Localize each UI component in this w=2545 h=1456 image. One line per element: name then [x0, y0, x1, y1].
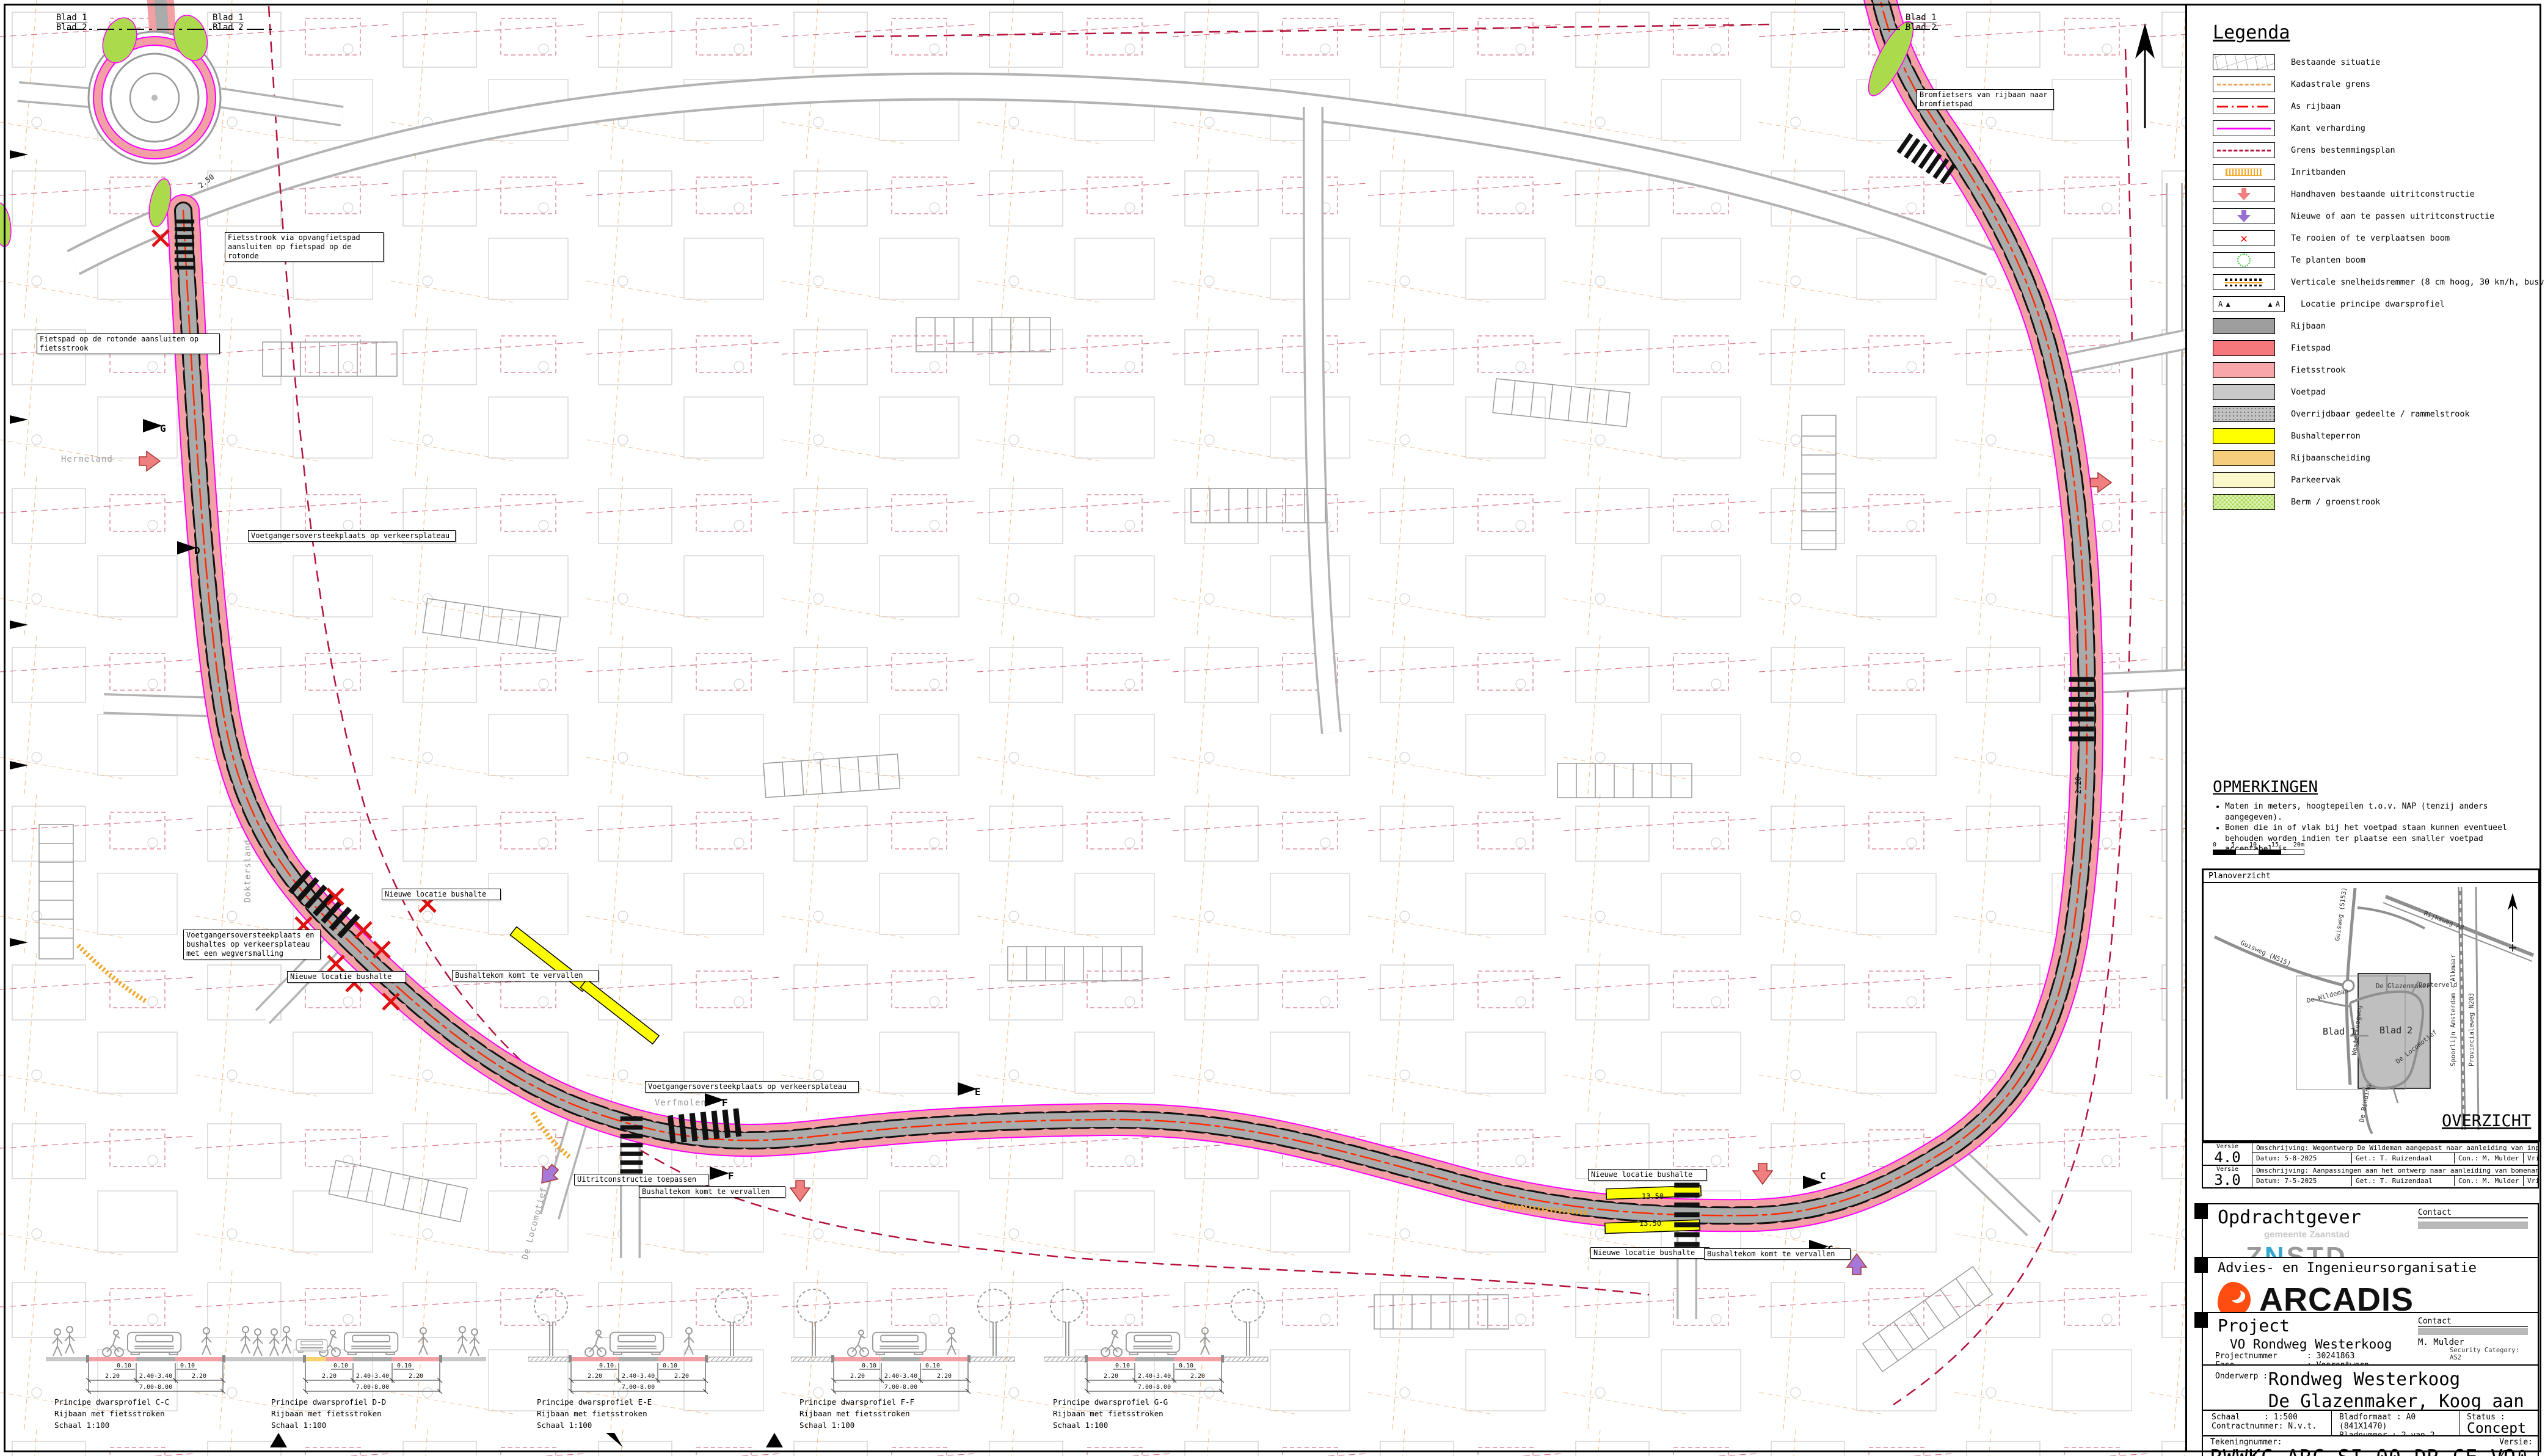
- security-category-label: Security Category:: [2450, 1347, 2529, 1355]
- map-dimension: 13.50: [1639, 1219, 1661, 1228]
- legend-item-label: Bushalteperron: [2291, 431, 2361, 441]
- map-annotation: Fietspad op de rotonde aansluiten op fie…: [37, 333, 220, 354]
- legend-item-label: Fietspad: [2291, 343, 2331, 353]
- legend-swatch: [2213, 274, 2275, 290]
- map-annotation: Voetgangersoversteekplaats en bushaltes …: [183, 930, 321, 959]
- scale-bar-ticks: 05101520m: [2213, 842, 2304, 848]
- section-marker-letter: E: [975, 1086, 981, 1097]
- legend-item: Rijbaan: [2213, 318, 2545, 334]
- map-annotation-text: Nieuwe locatie bushalte: [1591, 1170, 1692, 1179]
- svg-text:Guisweg (N515): Guisweg (N515): [2240, 939, 2292, 968]
- legend-item-label: Rijbaan: [2291, 321, 2326, 331]
- legend-item: Kant verharding: [2213, 120, 2545, 136]
- revision-table: Versie 4.0 Omschrijving: Wegontwerp De W…: [2202, 1142, 2539, 1188]
- security-category-value: AS2: [2450, 1354, 2529, 1362]
- map-annotation-text: Bromfietsers van rijbaan naar bromfietsp…: [1920, 90, 2048, 108]
- legend-swatch: [2213, 450, 2275, 466]
- map-annotation: Nieuwe locatie bushalte: [1588, 1169, 1707, 1181]
- blad-marker: Blad 1 Blad 2: [213, 13, 244, 33]
- legend-item: Bushalteperron: [2213, 428, 2545, 444]
- legend-item-label: Kant verharding: [2291, 123, 2365, 133]
- revision-row: Versie 4.0 Omschrijving: Wegontwerp De W…: [2203, 1143, 2538, 1166]
- overview-blad1: Blad 1: [2323, 1026, 2356, 1037]
- map-dimension: 2.50: [197, 172, 216, 190]
- bladformaat: Bladformaat : A0 (841X1470): [2339, 1413, 2459, 1431]
- legend-swatch: [2213, 98, 2275, 114]
- version-number: 3.0: [2203, 1173, 2252, 1187]
- scale-tick: 15: [2271, 842, 2279, 848]
- legend-item: Te rooien of te verplaatsen boom: [2213, 230, 2545, 246]
- legend-item-label: Inritbanden: [2291, 167, 2345, 177]
- revision-checked-by: Con.: M. Mulder: [2455, 1153, 2524, 1163]
- drawing-number-row: Tekeningnummer: RWWKG-ARC-SI-00-DR-CE-VO…: [2202, 1435, 2539, 1456]
- legend-swatch: [2213, 252, 2275, 268]
- status-value: Concept: [2467, 1422, 2538, 1436]
- project-section: Project Contact M. Mulder VO Rondweg Wes…: [2202, 1312, 2539, 1366]
- scale-tick: 0: [2213, 842, 2216, 848]
- projectnumber-label: Projectnummer: [2215, 1352, 2307, 1361]
- legend-swatch: [2213, 208, 2275, 224]
- map-annotation: Bushaltekom komt te vervallen: [639, 1186, 785, 1198]
- svg-text:Oosterveld: Oosterveld: [2419, 981, 2457, 989]
- section-marker-letter: F: [728, 1170, 734, 1182]
- legend-title: Legenda: [2213, 22, 2545, 43]
- gemeente-zaanstad-wordmark: gemeente Zaanstad: [2264, 1229, 2538, 1240]
- blad-2-label: Blad 2: [213, 23, 244, 32]
- revision-drawn-by: Get.: T. Ruizendaal: [2352, 1153, 2455, 1163]
- version-number: 4.0: [2203, 1150, 2252, 1165]
- scale-bar-graphic: [2213, 850, 2304, 855]
- engineer-label: Advies- en Ingenieursorganisatie: [2218, 1261, 2538, 1276]
- scale-tick: 5: [2231, 842, 2235, 848]
- overview-blad2: Blad 2: [2379, 1025, 2412, 1036]
- blad-marker: Blad 1 Blad 2: [1906, 13, 1937, 33]
- map-annotation-text: Voetgangersoversteekplaats op verkeerspl…: [648, 1082, 847, 1091]
- legend-item: Bestaande situatie: [2213, 54, 2545, 70]
- legend: Legenda Bestaande situatie Kadastrale gr…: [2213, 22, 2545, 516]
- opmerkingen-title: OPMERKINGEN: [2213, 778, 2530, 796]
- legend-item: Kadastrale grens: [2213, 76, 2545, 92]
- overview-north-arrow: [2508, 893, 2518, 952]
- legend-item: Locatie principe dwarsprofiel: [2213, 296, 2545, 312]
- legend-item-label: Fietsstrook: [2291, 365, 2345, 375]
- section-corner-mark: [2194, 1312, 2208, 1328]
- map-annotation: Nieuwe locatie bushalte: [382, 889, 501, 900]
- project-contact-redacted: [2418, 1328, 2528, 1335]
- street-name: Hermeland: [61, 454, 113, 464]
- scale-tick: 20m: [2293, 842, 2304, 848]
- scale-row: Schaal : 1:500 Contractnummer: N.v.t. Bl…: [2202, 1410, 2539, 1436]
- blad-2-label: Blad 2: [1906, 23, 1937, 32]
- revision-date: Datum: 7-5-2025: [2252, 1176, 2352, 1186]
- blad-1-label: Blad 1: [56, 13, 87, 23]
- legend-item-label: Overrijdbaar gedeelte / rammelstrook: [2291, 409, 2470, 419]
- svg-text:Guisweg (S153): Guisweg (S153): [2334, 887, 2348, 941]
- map-annotation-text: Bushaltekom komt te vervallen: [455, 971, 583, 980]
- legend-item: Berm / groenstrook: [2213, 494, 2545, 510]
- project-contact-label: Contact: [2418, 1317, 2528, 1327]
- revision-row: Versie 3.0 Omschrijving: Aanpassingen aa…: [2203, 1166, 2538, 1187]
- map-annotation: Fietsstrook via opvangfietspad aansluite…: [225, 232, 384, 262]
- map-annotation-text: Voetgangersoversteekplaats en bushaltes …: [186, 931, 315, 958]
- legend-swatch: [2213, 76, 2275, 92]
- legend-item: Nieuwe of aan te passen uitritconstructi…: [2213, 208, 2545, 224]
- client-contact-redacted: [2418, 1221, 2528, 1229]
- legend-item: Handhaven bestaande uitritconstructie: [2213, 186, 2545, 202]
- legend-swatch: [2213, 296, 2285, 312]
- legend-swatch: [2213, 164, 2275, 180]
- svg-text:Spoorlijn Amsterdam - Alkmaar: Spoorlijn Amsterdam - Alkmaar: [2450, 955, 2457, 1066]
- version-box: Versie: 4.0: [2499, 1438, 2533, 1456]
- street-name: Doktersland: [243, 839, 253, 903]
- section-marker-letter: G: [160, 423, 166, 434]
- map-annotation-text: Nieuwe locatie bushalte: [385, 890, 486, 898]
- legend-item: As rijbaan: [2213, 98, 2545, 114]
- blad-2-label: Blad 2: [56, 23, 87, 32]
- map-annotation-text: Nieuwe locatie bushalte: [1593, 1248, 1695, 1257]
- revision-version-cell: Versie 3.0: [2203, 1166, 2252, 1187]
- map-annotation: Uitritconstructie toepassen: [574, 1174, 708, 1185]
- revision-date: Datum: 5-8-2025: [2252, 1153, 2352, 1163]
- map-annotation-text: Uitritconstructie toepassen: [577, 1175, 696, 1184]
- blad-1-label: Blad 1: [1906, 13, 1937, 23]
- section-corner-mark: [2194, 1203, 2208, 1219]
- revision-checked-by: Con.: M. Mulder: [2455, 1176, 2524, 1186]
- contractnummer-value: : N.v.t.: [2279, 1422, 2317, 1431]
- legend-swatch: [2213, 406, 2275, 422]
- security-category: Security Category: AS2: [2450, 1347, 2529, 1362]
- legend-swatch: [2213, 384, 2275, 400]
- map-annotation-text: Bushaltekom komt te vervallen: [1707, 1250, 1835, 1258]
- legend-swatch: [2213, 230, 2275, 246]
- subject-line1: Rondweg Westerkoog: [2268, 1368, 2538, 1390]
- map-annotation: Nieuwe locatie bushalte: [1590, 1247, 1709, 1259]
- map-area: Fietspad op de rotonde aansluiten op fie…: [0, 0, 2185, 1456]
- version-box-value: 4.0: [2499, 1447, 2533, 1456]
- street-name: De Locomotief: [520, 1186, 549, 1261]
- map-annotation-text: Fietsstrook via opvangfietspad aansluite…: [228, 233, 360, 260]
- overview-panel: Planoverzicht: [2202, 868, 2540, 1142]
- client-contact-label: Contact: [2418, 1208, 2528, 1218]
- legend-item-label: Te rooien of te verplaatsen boom: [2291, 233, 2450, 243]
- legend-item-label: Locatie principe dwarsprofiel: [2301, 299, 2445, 309]
- title-column: Legenda Bestaande situatie Kadastrale gr…: [2185, 4, 2543, 1452]
- map-annotation-text: Fietspad op de rotonde aansluiten op fie…: [40, 335, 198, 352]
- legend-item-label: Parkeervak: [2291, 475, 2340, 485]
- legend-item: Inritbanden: [2213, 164, 2545, 180]
- drawing-number: RWWKG-ARC-SI-00-DR-CE-VO-0002: [2210, 1447, 2538, 1456]
- schaal-value: : 1:500: [2264, 1413, 2298, 1422]
- revision-released-by: Vrij.: M. Mulder: [2524, 1153, 2538, 1163]
- overview-map: Guisweg (N515) Guisweg (S153) Rijksweg A…: [2204, 883, 2535, 1135]
- section-marker-letter: F: [722, 1097, 728, 1108]
- section-marker-letter: D: [194, 545, 200, 556]
- legend-item: Parkeervak: [2213, 472, 2545, 488]
- legend-swatch: [2213, 362, 2275, 378]
- version-box-label: Versie:: [2499, 1438, 2533, 1447]
- legend-item: Te planten boom: [2213, 252, 2545, 268]
- legend-swatch: [2213, 54, 2275, 70]
- map-annotation: Nieuwe locatie bushalte: [287, 971, 406, 983]
- legend-item-label: Handhaven bestaande uitritconstructie: [2291, 189, 2475, 199]
- legend-item-label: Kadastrale grens: [2291, 79, 2370, 89]
- subject-section: Onderwerp : Rondweg Westerkoog De Glazen…: [2202, 1364, 2539, 1411]
- legend-item-label: Voetpad: [2291, 387, 2326, 397]
- legend-item: Fietspad: [2213, 340, 2545, 356]
- svg-text:Provincialeweg N203: Provincialeweg N203: [2468, 993, 2475, 1066]
- map-annotation: Bushaltekom komt te vervallen: [1704, 1248, 1851, 1260]
- legend-item-list: Bestaande situatie Kadastrale grens As r…: [2213, 54, 2545, 510]
- blad-marker: Blad 1 Blad 2: [56, 13, 87, 33]
- engineer-section: Advies- en Ingenieursorganisatie ARCADIS: [2202, 1257, 2539, 1313]
- overview-title: OVERZICHT: [2442, 1112, 2531, 1130]
- legend-swatch: [2213, 494, 2275, 510]
- overview-labels: Guisweg (N515) Guisweg (S153) Rijksweg A…: [2240, 887, 2475, 1123]
- schaal-label: Schaal: [2212, 1413, 2240, 1422]
- legend-swatch: [2213, 472, 2275, 488]
- client-section: Opdrachtgever Contact gemeente Zaanstad …: [2202, 1203, 2539, 1258]
- legend-swatch: [2213, 428, 2275, 444]
- legend-item: Overrijdbaar gedeelte / rammelstrook: [2213, 406, 2545, 422]
- legend-item-label: Te planten boom: [2291, 255, 2365, 265]
- map-annotation: Bromfietsers van rijbaan naar bromfietsp…: [1917, 89, 2054, 110]
- legend-item: Voetpad: [2213, 384, 2545, 400]
- map-annotation: Voetgangersoversteekplaats op verkeerspl…: [248, 530, 456, 542]
- legend-item-label: Verticale snelheidsremmer (8 cm hoog, 30…: [2291, 277, 2545, 287]
- revision-description: Omschrijving: Wegontwerp De Wildeman aan…: [2252, 1143, 2538, 1153]
- legend-item-label: Rijbaanscheiding: [2291, 453, 2370, 463]
- map-dimension: 13.50: [1642, 1192, 1664, 1201]
- legend-item-label: Berm / groenstrook: [2291, 497, 2380, 507]
- legend-item: Grens bestemmingsplan: [2213, 142, 2545, 158]
- scale-bar: 05101520m: [2213, 842, 2304, 855]
- revision-drawn-by: Get.: T. Ruizendaal: [2352, 1176, 2455, 1186]
- legend-item-label: Nieuwe of aan te passen uitritconstructi…: [2291, 211, 2494, 221]
- legend-swatch: [2213, 318, 2275, 334]
- opmerking-item: Maten in meters, hoogtepeilen t.o.v. NAP…: [2225, 801, 2530, 823]
- blad-1-label: Blad 1: [213, 13, 244, 23]
- drawing-sheet: Fietspad op de rotonde aansluiten op fie…: [0, 0, 2545, 1456]
- revision-description: Omschrijving: Aanpassingen aan het ontwe…: [2252, 1166, 2538, 1176]
- street-name: Verfmolen: [655, 1098, 707, 1108]
- legend-swatch: [2213, 186, 2275, 202]
- legend-swatch: [2213, 120, 2275, 136]
- map-annotation: Voetgangersoversteekplaats op verkeerspl…: [645, 1081, 859, 1093]
- legend-swatch: [2213, 142, 2275, 158]
- legend-item-label: As rijbaan: [2291, 101, 2340, 111]
- revision-released-by: Vrij.: M. Mulder: [2524, 1176, 2538, 1186]
- map-annotation-text: Bushaltekom komt te vervallen: [642, 1187, 770, 1196]
- map-dimension: 2.20: [2074, 776, 2083, 794]
- map-annotation-text: Voetgangersoversteekplaats op verkeerspl…: [251, 531, 450, 540]
- contractnummer-label: Contractnummer: [2212, 1422, 2279, 1431]
- legend-item-label: Grens bestemmingsplan: [2291, 145, 2395, 155]
- legend-item: Rijbaanscheiding: [2213, 450, 2545, 466]
- overview-panel-label: Planoverzicht: [2204, 870, 2538, 883]
- revision-version-cell: Versie 4.0: [2203, 1143, 2252, 1165]
- legend-item: Verticale snelheidsremmer (8 cm hoog, 30…: [2213, 274, 2545, 290]
- legend-item-label: Bestaande situatie: [2291, 57, 2380, 67]
- section-marker-letter: C: [1820, 1170, 1826, 1182]
- map-annotation: Bushaltekom komt te vervallen: [452, 970, 599, 981]
- legend-item: Fietsstrook: [2213, 362, 2545, 378]
- legend-swatch: [2213, 340, 2275, 356]
- projectnumber-value: : 30241863: [2307, 1352, 2354, 1361]
- map-annotation-text: Nieuwe locatie bushalte: [290, 972, 391, 981]
- scale-tick: 10: [2249, 842, 2257, 848]
- project-contact-name: M. Mulder: [2418, 1338, 2464, 1347]
- map-labels: Fietspad op de rotonde aansluiten op fie…: [0, 0, 2185, 1456]
- section-corner-mark: [2194, 1257, 2208, 1273]
